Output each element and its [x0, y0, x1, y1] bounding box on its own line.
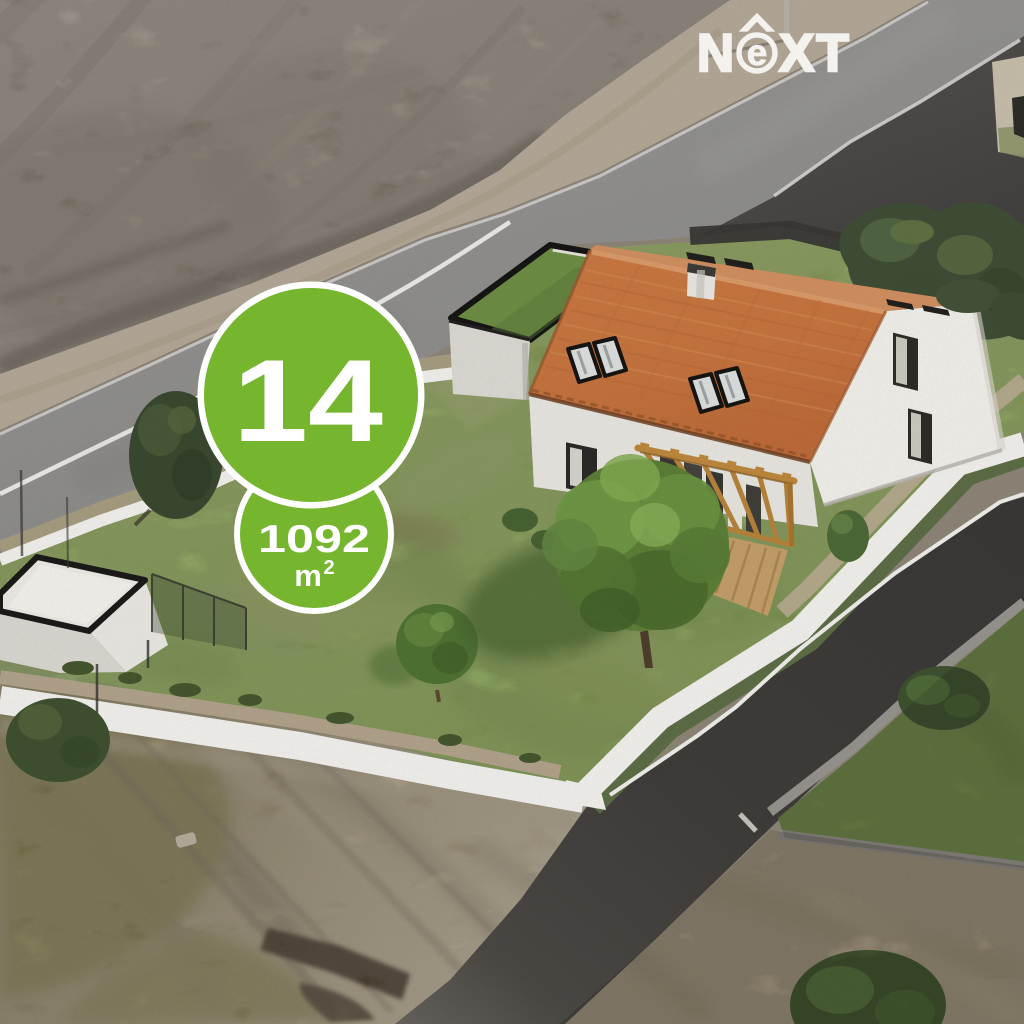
svg-text:m: m [294, 558, 322, 593]
svg-text:XT: XT [779, 24, 851, 83]
svg-text:2: 2 [323, 557, 334, 579]
svg-text:14: 14 [233, 335, 383, 466]
svg-text:1092: 1092 [258, 518, 370, 561]
svg-text:N: N [697, 24, 734, 83]
svg-text:e: e [747, 32, 768, 73]
